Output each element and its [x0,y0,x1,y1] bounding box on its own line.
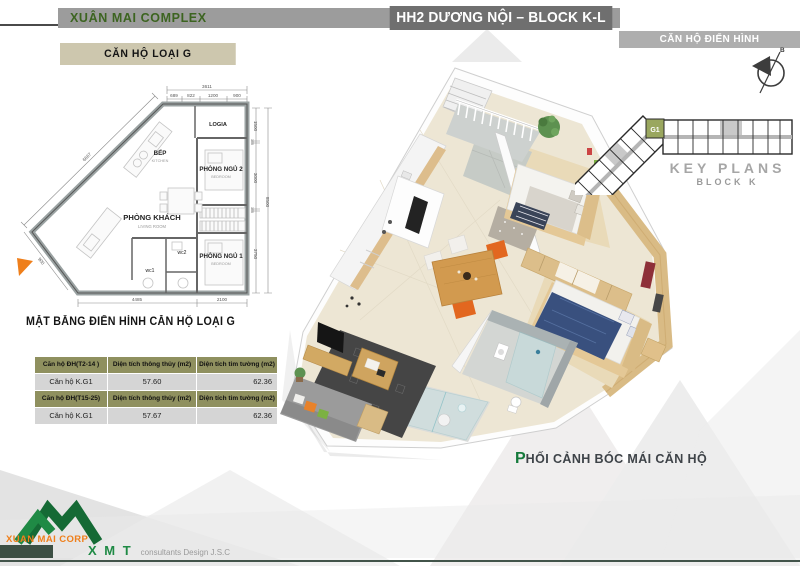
key-plan-horizontal-wing [663,120,792,154]
corp-name: XUAN MAI CORP [6,534,88,545]
block-title-bar: HH2 DƯƠNG NỘI – BLOCK K-L [390,6,613,30]
area-table: Căn hộ ĐH(T2-14 ) Diện tích thông thủy (… [35,357,278,425]
svg-text:PHÒNG NGỦ 1: PHÒNG NGỦ 1 [199,252,243,260]
svg-text:900: 900 [233,93,241,98]
table-row: Căn hộ K.G1 57.67 62.36 [35,408,278,424]
table-row: Căn hộ ĐH(T15-25) Diện tích thông thủy (… [35,391,278,407]
svg-text:3611: 3611 [202,84,212,89]
svg-text:822: 822 [187,93,195,98]
svg-text:4485: 4485 [132,297,143,302]
unit-type-bar: CĂN HỘ LOẠI G [60,43,236,65]
page: XUÂN MAI COMPLEX HH2 DƯƠNG NỘI – BLOCK K… [0,0,800,566]
key-plan-highlight-unit: G1 [646,119,664,138]
svg-text:1500: 1500 [253,121,258,132]
svg-text:wc1: wc1 [146,268,155,274]
table-cell: Căn hộ K.G1 [35,374,107,390]
table-cell: 62.36 [197,408,277,424]
svg-text:689: 689 [170,93,178,98]
key-plans-title: KEY PLANS [655,160,800,176]
table-header-cell: Căn hộ ĐH(T2-14 ) [35,357,107,373]
entrance-arrow [17,258,33,276]
svg-text:B: B [780,47,785,54]
svg-text:100: 100 [250,207,254,213]
plan-dimension-labels-right: 1500 100 3000 100 3750 8500 [250,121,270,260]
designer-credit: X M Tconsultants Design J.S.C [88,542,230,560]
table-header-cell: Diện tích thông thủy (m2) [108,357,196,373]
svg-text:100: 100 [250,139,254,145]
designer-suffix: consultants Design J.S.C [141,548,230,557]
table-header-cell: Diện tích thông thủy (m2) [108,391,196,407]
svg-text:1200: 1200 [208,93,219,98]
svg-text:900: 900 [37,257,46,266]
footer-rule-line [0,560,800,562]
table-header-cell: Căn hộ ĐH(T15-25) [35,391,107,407]
svg-text:BEDROOM: BEDROOM [211,175,231,179]
svg-text:LOGIA: LOGIA [209,122,227,128]
table-header-cell: Diện tích tim tường (m2) [197,357,277,373]
svg-text:6667: 6667 [82,151,93,162]
plan-dimension-labels-top: 3611 689 822 1200 900 [170,84,241,98]
svg-text:BẾP: BẾP [154,150,167,157]
table-header-cell: Diện tích tim tường (m2) [197,391,277,407]
svg-text:G1: G1 [650,127,659,134]
svg-text:PHÒNG NGỦ 2: PHÒNG NGỦ 2 [199,165,243,173]
table-cell: Căn hộ K.G1 [35,408,107,424]
svg-text:wc2: wc2 [178,250,187,256]
table-cell: 62.36 [197,374,277,390]
svg-text:PHÒNG KHÁCH: PHÒNG KHÁCH [123,213,180,222]
table-row: Căn hộ K.G1 57.60 62.36 [35,374,278,390]
table-cell: 57.67 [108,408,196,424]
svg-text:LIVING ROOM: LIVING ROOM [138,224,166,229]
plan-caption: MẶT BẰNG ĐIỂN HÌNH CĂN HỘ LOẠI G [26,316,262,328]
perspective-caption-rest: HỐI CẢNH BÓC MÁI CĂN HỘ [526,452,707,466]
svg-text:3750: 3750 [253,249,258,260]
perspective-caption: PHỐI CẢNH BÓC MÁI CĂN HỘ [515,450,707,472]
compass-icon: B [752,47,785,93]
svg-text:BEDROOM: BEDROOM [211,262,231,266]
project-title: XUÂN MAI COMPLEX [70,8,207,28]
footer-green-block [0,545,53,558]
plan-dimension-labels-bottom: 4485 2100 [132,297,228,302]
table-cell: 57.60 [108,374,196,390]
svg-text:8500: 8500 [265,197,270,208]
table-row: Căn hộ ĐH(T2-14 ) Diện tích thông thủy (… [35,357,278,373]
designer-initials: X M T [88,543,133,558]
svg-text:KITCHEN: KITCHEN [152,159,169,163]
svg-text:3000: 3000 [253,173,258,184]
key-plans-subtitle: BLOCK K [655,177,800,187]
header-rule-line [0,24,58,26]
perspective-caption-initial: P [515,450,526,467]
floor-plan-2d: 3611 689 822 1200 900 1500 100 3000 100 … [10,78,290,346]
svg-text:2100: 2100 [217,297,228,302]
